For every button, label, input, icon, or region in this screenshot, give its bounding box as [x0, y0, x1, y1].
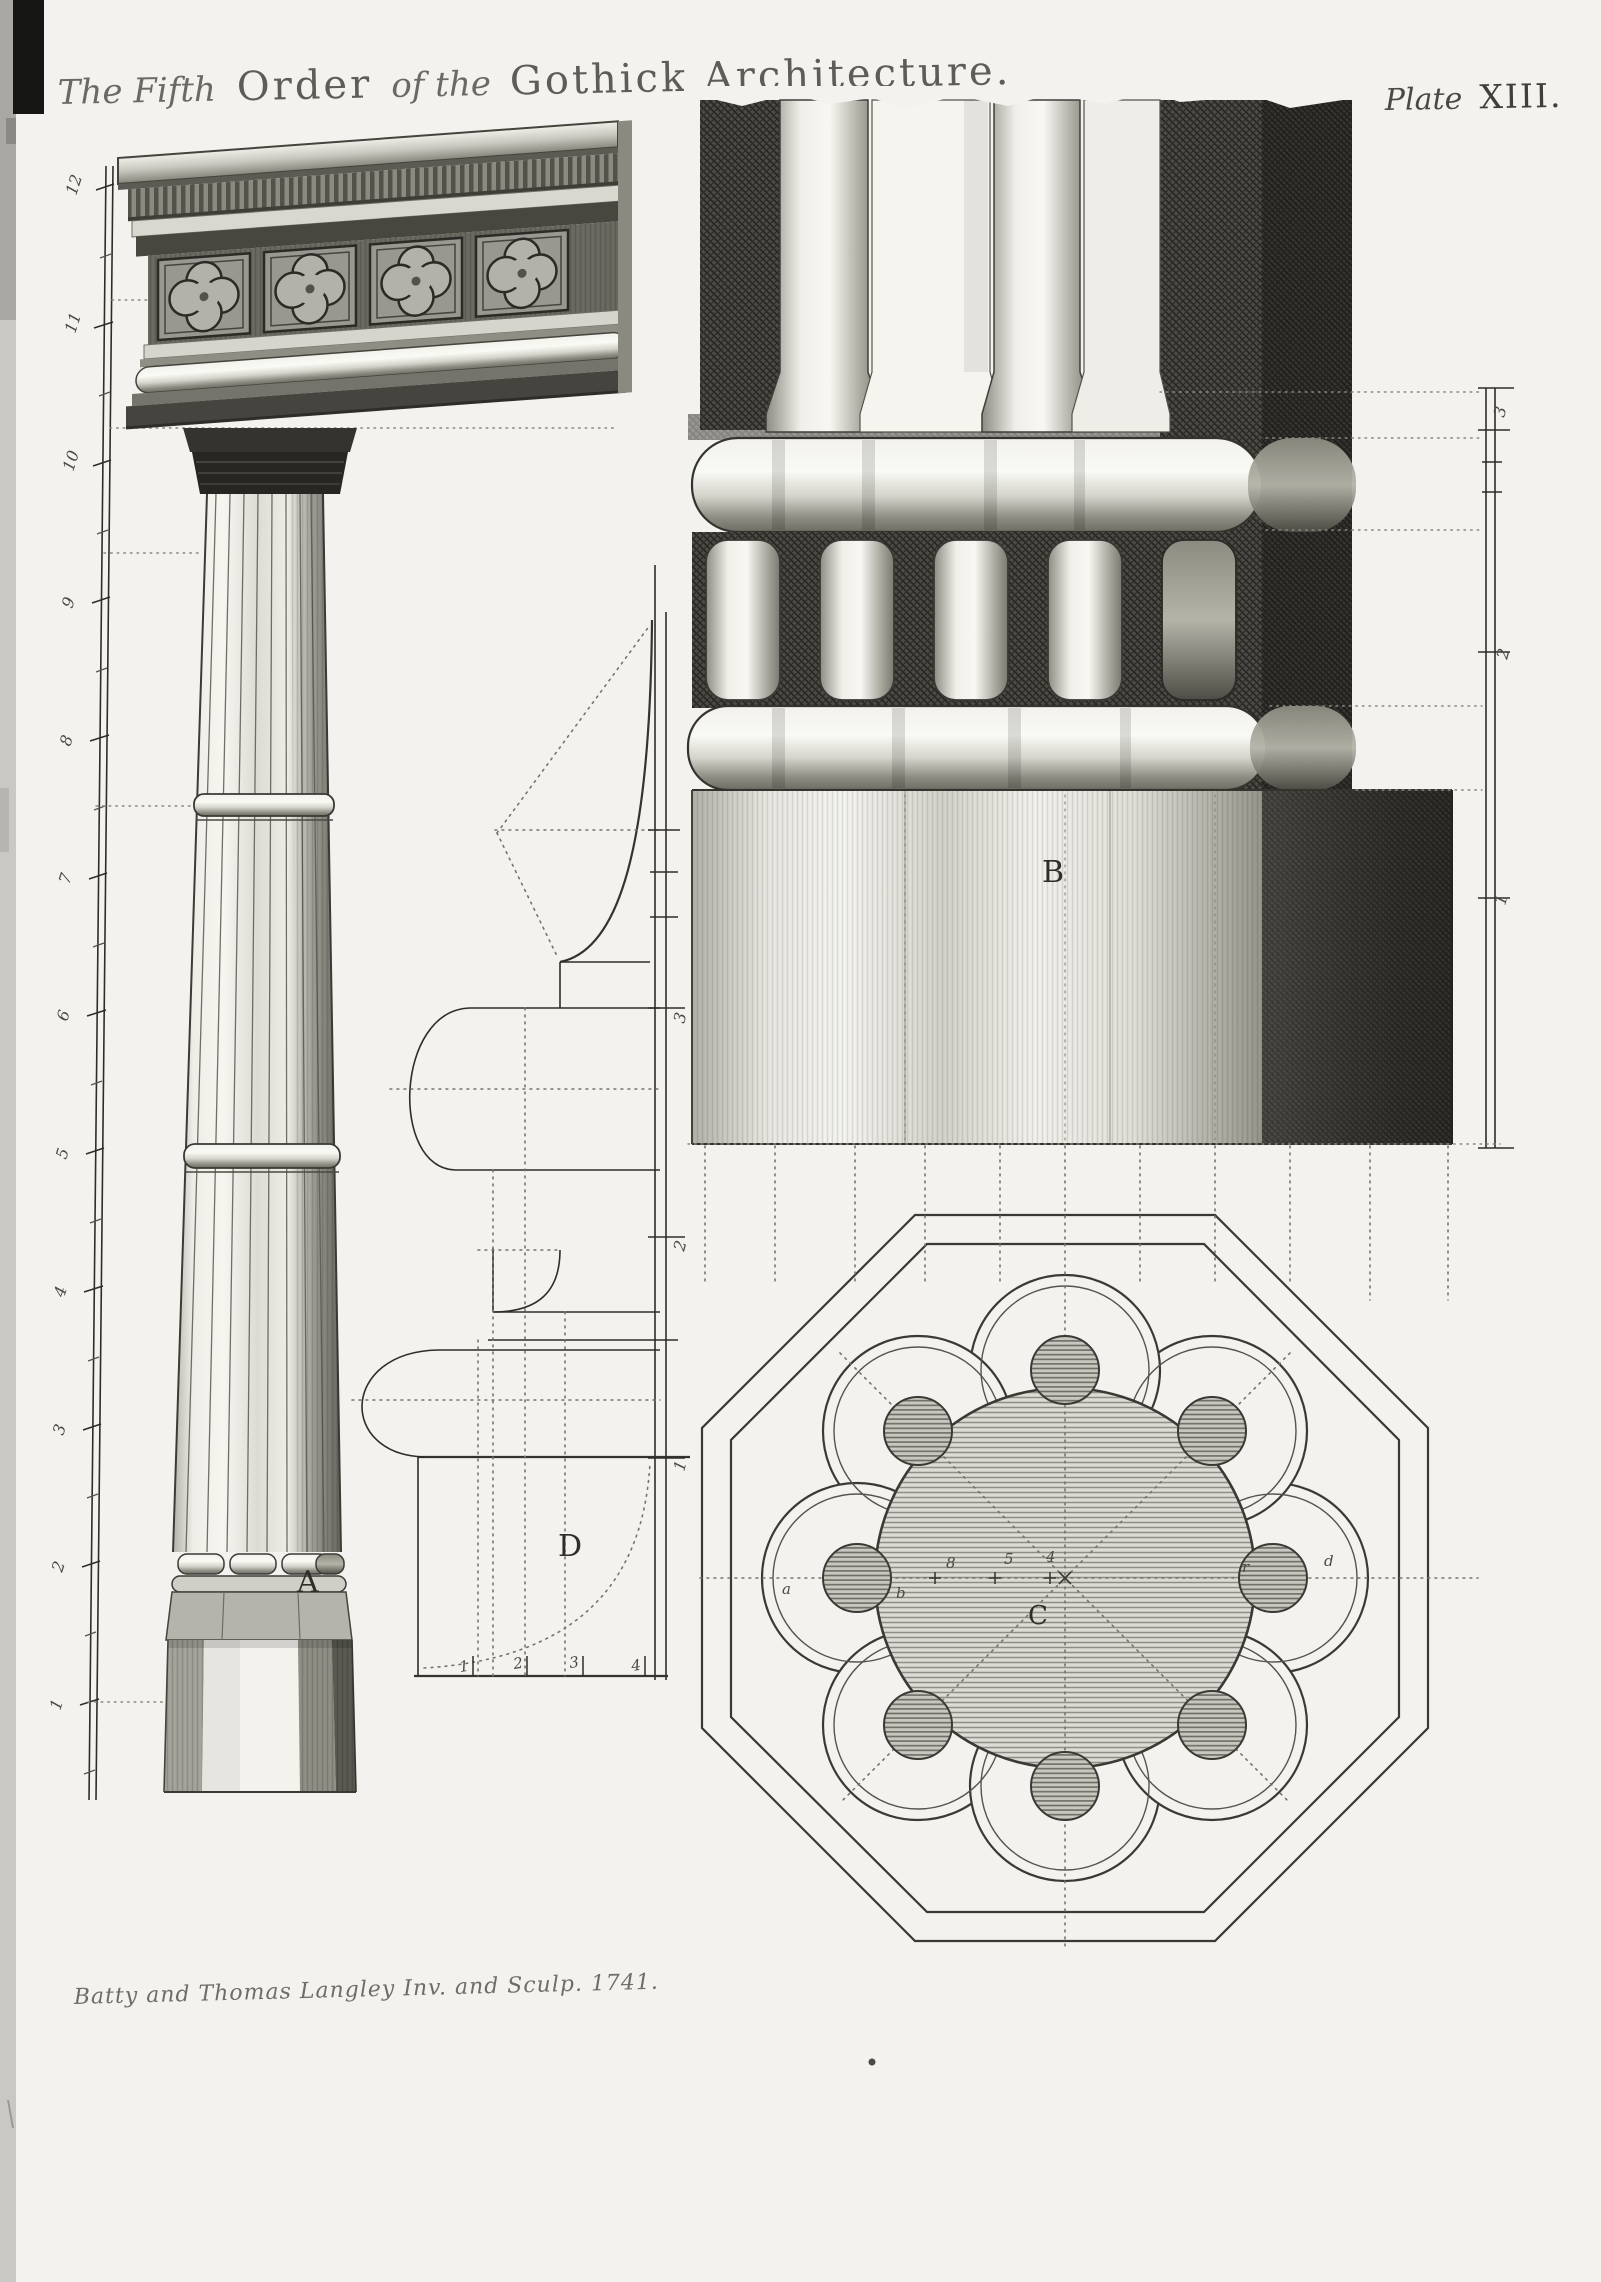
intermediate-shaft-band: [692, 532, 1258, 708]
clustered-shafts: [700, 100, 1170, 432]
title-roman-1: Order: [236, 61, 372, 110]
plinth: [164, 1640, 356, 1792]
figure-c-label: C: [1028, 1601, 1048, 1631]
ink-spot: [869, 2059, 876, 2066]
plan-point-label: b: [896, 1584, 906, 1602]
column-capital: [183, 428, 357, 494]
shaft-ring-lower: [184, 1144, 340, 1168]
plate-numeral: XIII.: [1479, 76, 1563, 116]
title-script-2: of the: [391, 64, 491, 106]
plinth-drum: [692, 790, 1452, 1144]
plan-point-label: 5: [1004, 1550, 1014, 1568]
title-script-1: The Fifth: [57, 70, 216, 113]
lower-torus: [688, 706, 1356, 790]
gutter-shadow-notch: [13, 0, 44, 114]
plan-point-label: a: [782, 1580, 791, 1598]
figure-a-label: A: [296, 1565, 319, 1600]
plan-point-label: 8: [946, 1554, 956, 1572]
shaft-ring-upper: [194, 794, 334, 816]
scanned-plate-page: The Fifth Order of the Gothick Architect…: [0, 0, 1601, 2282]
plate-word: Plate: [1384, 82, 1463, 118]
plan-point-label: 4: [1045, 1548, 1056, 1566]
plan-point-label: d: [1324, 1552, 1334, 1570]
figure-b-label: B: [1042, 855, 1064, 890]
engraved-plate: The Fifth Order of the Gothick Architect…: [0, 0, 1601, 2282]
figure-d-label: D: [558, 1529, 582, 1564]
column-base: [164, 1554, 356, 1792]
plan-point-label: r: [1242, 1558, 1250, 1576]
entablature: [118, 120, 632, 430]
